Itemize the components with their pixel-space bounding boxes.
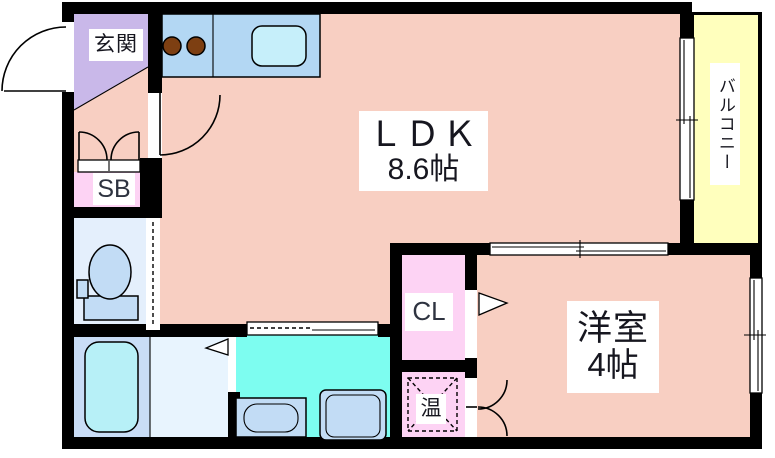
wall [62,207,162,218]
yoshitsu-label: 洋室 4帖 [567,301,659,393]
wall [378,324,402,337]
balcony-fence [758,12,762,248]
closet-label: CL [405,293,453,331]
yoshitsu-size: 4帖 [587,348,638,383]
wall [62,92,74,437]
wall [390,243,490,255]
wall [390,360,477,372]
stove-burner-icon [187,37,205,55]
wall [148,14,162,93]
stove-burner-icon [163,37,181,55]
heater-label: 温 [416,394,446,424]
floor-plan: 玄関 SB ＬＤＫ 8.6帖 バルコニー CL 温 洋室 4帖 [0,0,775,458]
wall [750,393,762,437]
ldk-size: 8.6帖 [388,154,460,186]
ldk-label: ＬＤＫ 8.6帖 [359,111,488,191]
wall [680,200,694,255]
wall [62,2,692,14]
washing-machine-pan-icon [320,390,386,440]
wall [680,14,694,38]
ldk-name: ＬＤＫ [368,117,479,154]
yoshitsu-name: 洋室 [577,311,649,348]
entrance-opening [62,22,74,92]
genkan-label: 玄関 [89,29,143,61]
washroom-sliding-door [247,322,378,335]
balcony-fence [692,12,762,15]
wall [62,2,74,22]
entrance-door-icon [2,27,66,91]
kitchen-sink-icon [252,26,306,66]
shoebox-label: SB [93,173,135,205]
closet-door-opening [465,290,477,358]
washbasin-icon [236,398,306,437]
bathtub-icon [85,342,138,432]
balcony-label: バルコニー [710,63,740,185]
wall [62,437,762,449]
bath-door-opening [228,337,236,392]
ldk-yoshitsu-sliding-door [490,240,668,258]
